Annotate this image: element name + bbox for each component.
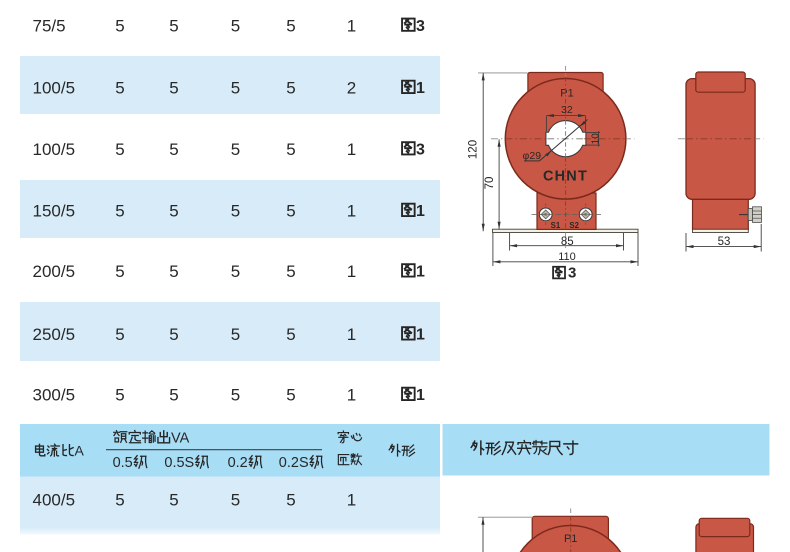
svg-text:1: 1: [347, 491, 356, 510]
svg-text:53: 53: [718, 236, 731, 248]
svg-text:5: 5: [231, 17, 240, 36]
svg-text:5: 5: [115, 491, 124, 510]
svg-text:5: 5: [231, 491, 240, 510]
svg-text:5: 5: [286, 262, 295, 281]
svg-text:5: 5: [169, 202, 178, 221]
svg-text:A: A: [75, 443, 85, 459]
svg-text:5: 5: [286, 325, 295, 344]
svg-text:5: 5: [286, 386, 295, 405]
svg-text:5: 5: [115, 262, 124, 281]
svg-text:1: 1: [347, 262, 356, 281]
svg-text:5: 5: [169, 17, 178, 36]
svg-text:1: 1: [347, 325, 356, 344]
svg-text:5: 5: [286, 140, 295, 159]
svg-text:1: 1: [347, 386, 356, 405]
svg-text:5: 5: [115, 386, 124, 405]
svg-text:150/5: 150/5: [33, 202, 76, 221]
svg-text:85: 85: [561, 236, 574, 248]
svg-text:110: 110: [558, 251, 576, 263]
svg-text:S2: S2: [569, 221, 579, 230]
svg-text:100/5: 100/5: [33, 79, 76, 98]
svg-text:5: 5: [169, 140, 178, 159]
svg-text:3: 3: [416, 142, 425, 159]
svg-text:1: 1: [347, 17, 356, 36]
svg-text:5: 5: [231, 262, 240, 281]
svg-text:5: 5: [115, 140, 124, 159]
svg-text:5: 5: [115, 202, 124, 221]
svg-text:2: 2: [347, 79, 356, 98]
svg-text:0.5S: 0.5S: [164, 455, 194, 471]
svg-text:1: 1: [416, 387, 425, 404]
svg-text:1: 1: [347, 202, 356, 221]
svg-text:5: 5: [286, 17, 295, 36]
svg-text:S1: S1: [551, 221, 561, 230]
svg-text:250/5: 250/5: [33, 325, 76, 344]
svg-text:5: 5: [286, 491, 295, 510]
svg-text:0.2S: 0.2S: [279, 455, 309, 471]
svg-text:3: 3: [568, 265, 576, 282]
svg-text:5: 5: [115, 325, 124, 344]
svg-text:100/5: 100/5: [33, 140, 76, 159]
svg-text:3: 3: [416, 18, 425, 35]
svg-text:0.5: 0.5: [113, 455, 133, 471]
svg-text:φ29: φ29: [523, 150, 542, 162]
svg-text:1: 1: [416, 264, 425, 281]
svg-text:75/5: 75/5: [33, 17, 66, 36]
svg-text:5: 5: [169, 262, 178, 281]
svg-text:5: 5: [231, 202, 240, 221]
svg-text:5: 5: [169, 386, 178, 405]
svg-text:5: 5: [231, 386, 240, 405]
svg-text:1: 1: [416, 327, 425, 344]
svg-text:5: 5: [286, 79, 295, 98]
svg-text:200/5: 200/5: [33, 262, 76, 281]
svg-text:1: 1: [347, 140, 356, 159]
svg-text:0.2: 0.2: [228, 455, 248, 471]
svg-text:5: 5: [169, 79, 178, 98]
svg-text:5: 5: [231, 79, 240, 98]
svg-text:32: 32: [561, 104, 573, 116]
svg-text:400/5: 400/5: [33, 491, 76, 510]
svg-text:5: 5: [231, 140, 240, 159]
svg-text:120: 120: [468, 140, 480, 159]
svg-text:10: 10: [590, 133, 601, 145]
svg-text:5: 5: [286, 202, 295, 221]
svg-text:P1: P1: [560, 87, 573, 99]
svg-text:5: 5: [169, 491, 178, 510]
svg-text:1: 1: [416, 203, 425, 220]
svg-text:5: 5: [231, 325, 240, 344]
svg-text:5: 5: [115, 17, 124, 36]
svg-text:5: 5: [169, 325, 178, 344]
svg-text:70: 70: [484, 177, 496, 190]
svg-text:300/5: 300/5: [33, 386, 76, 405]
svg-text:VA: VA: [171, 431, 190, 447]
svg-text:1: 1: [416, 80, 425, 97]
svg-text:5: 5: [115, 79, 124, 98]
